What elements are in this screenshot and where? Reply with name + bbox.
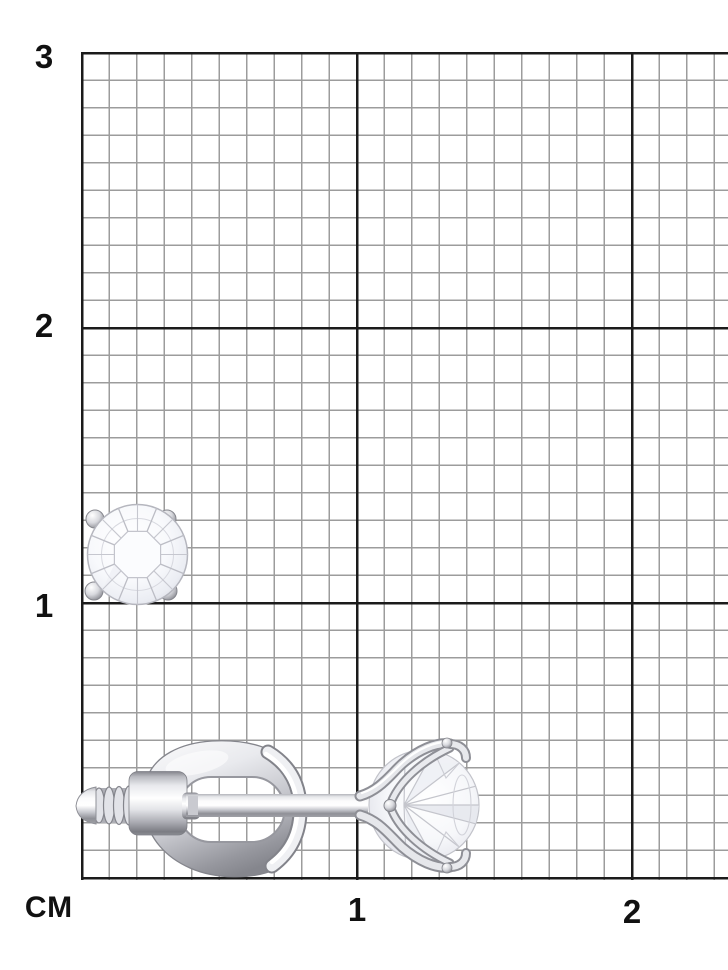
earring-artwork bbox=[0, 0, 728, 970]
post-step bbox=[188, 796, 198, 815]
diamond-stud-side-view bbox=[76, 738, 479, 877]
earring-post bbox=[186, 794, 368, 817]
screw-nut-barrel bbox=[129, 772, 187, 836]
front-gem-table-facet bbox=[114, 531, 160, 577]
screw-post-tip bbox=[76, 787, 96, 824]
measurement-photo: 3 2 1 1 2 СМ bbox=[0, 0, 728, 970]
diamond-stud-front-view bbox=[85, 505, 188, 605]
